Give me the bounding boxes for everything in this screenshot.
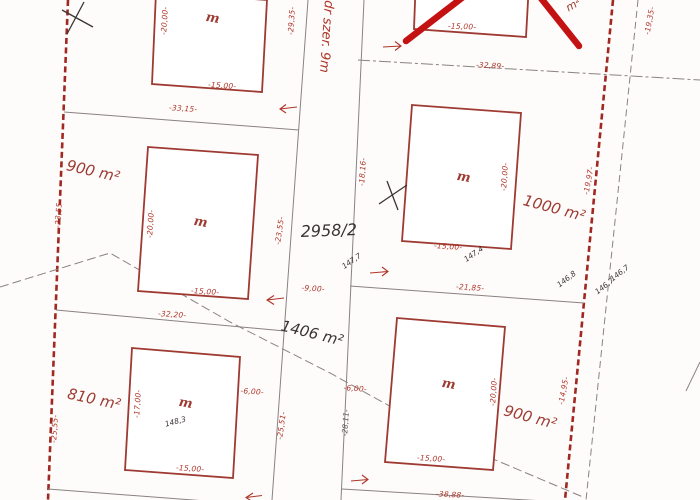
dim-road-edge-mid: -18,16-: [357, 157, 368, 186]
building-mark: m: [193, 214, 209, 231]
dim-building-front: -15,00-: [208, 80, 237, 91]
direction-arrow-right-3: [351, 475, 368, 484]
dim-left-boundary-bottom: -25,55-: [49, 414, 60, 443]
dim-road-width: -9,00-: [301, 283, 325, 294]
spot-height-146-7: 146,7: [608, 263, 631, 283]
dim-setback: -6,00-: [240, 386, 264, 397]
survey-cross-stroke: [379, 185, 407, 204]
cadastral-map-canvas: m m m m m 2958/2 dr szer. 9m 1406 m² 900…: [0, 0, 700, 500]
right-block-division-dashdot-line: [358, 60, 700, 80]
building-mark: m: [205, 10, 221, 27]
survey-cross-stroke: [387, 181, 398, 210]
right-boundary-dashed-line: [565, 0, 613, 500]
edge-tick-line: [686, 362, 700, 391]
parcel-number-label: 2958/2: [300, 220, 357, 241]
road-parcel-area-label: 1406 m²: [279, 317, 345, 350]
dim-right-block-bottom: -38,88-: [436, 489, 465, 499]
dim-left-block-top: -33,15-: [169, 103, 198, 114]
dim-right-boundary-mid: -19,97-: [582, 166, 596, 196]
dim-setback: -6,00-: [343, 383, 367, 394]
building-mark: m: [178, 395, 194, 412]
dim-plot-side: -23,55-: [273, 216, 286, 245]
dim-road-edge-top: -29,35-: [286, 6, 297, 35]
area-label-right-bottom: 900 m²: [502, 401, 559, 432]
building-outline-left-bottom: [125, 348, 240, 478]
area-label-left-bottom: 810 m²: [66, 385, 123, 414]
dim-right-boundary-bottom: -14,95-: [557, 376, 571, 406]
survey-cross-stroke: [67, 2, 84, 34]
building-mark: m: [456, 169, 472, 186]
dim-road-edge-bottom: -28,11-: [340, 409, 351, 437]
dim-right-boundary-top: -19,35-: [643, 6, 657, 36]
left-block-division-line-bottom: [48, 489, 272, 500]
direction-arrow-left-3: [246, 493, 262, 500]
dim-left-block-mid: -32,20-: [158, 309, 187, 320]
left-block-division-line-top: [64, 112, 299, 130]
building-mark: m: [441, 376, 457, 393]
dim-plot810-side: -25,51-: [275, 411, 288, 440]
direction-arrow-right-2: [370, 267, 388, 276]
dim-building-front: -15,00-: [448, 22, 477, 32]
dim-left-boundary-mid: -23,55-: [53, 199, 64, 228]
dim-right-block-mid: -21,85-: [456, 282, 485, 293]
dim-building-front: -15,00-: [434, 241, 463, 252]
direction-arrow-right-1: [383, 42, 401, 51]
cadastral-map-sheet: m m m m m 2958/2 dr szer. 9m 1406 m² 900…: [0, 0, 700, 500]
dim-right-block-top: -32,89-: [476, 60, 505, 70]
road-width-label: dr szer. 9m: [316, 0, 336, 73]
building-outline-right-bottom: [385, 318, 505, 470]
area-label-right-middle: 1000 m²: [521, 191, 587, 225]
area-label-left-middle: 900 m²: [65, 156, 122, 186]
area-label-top-cut: m²: [563, 0, 583, 14]
direction-arrow-left-1: [280, 105, 297, 114]
direction-arrow-left-2: [267, 296, 284, 305]
spot-height-146-8: 146,8: [555, 269, 578, 289]
survey-cross-center: [379, 181, 407, 210]
